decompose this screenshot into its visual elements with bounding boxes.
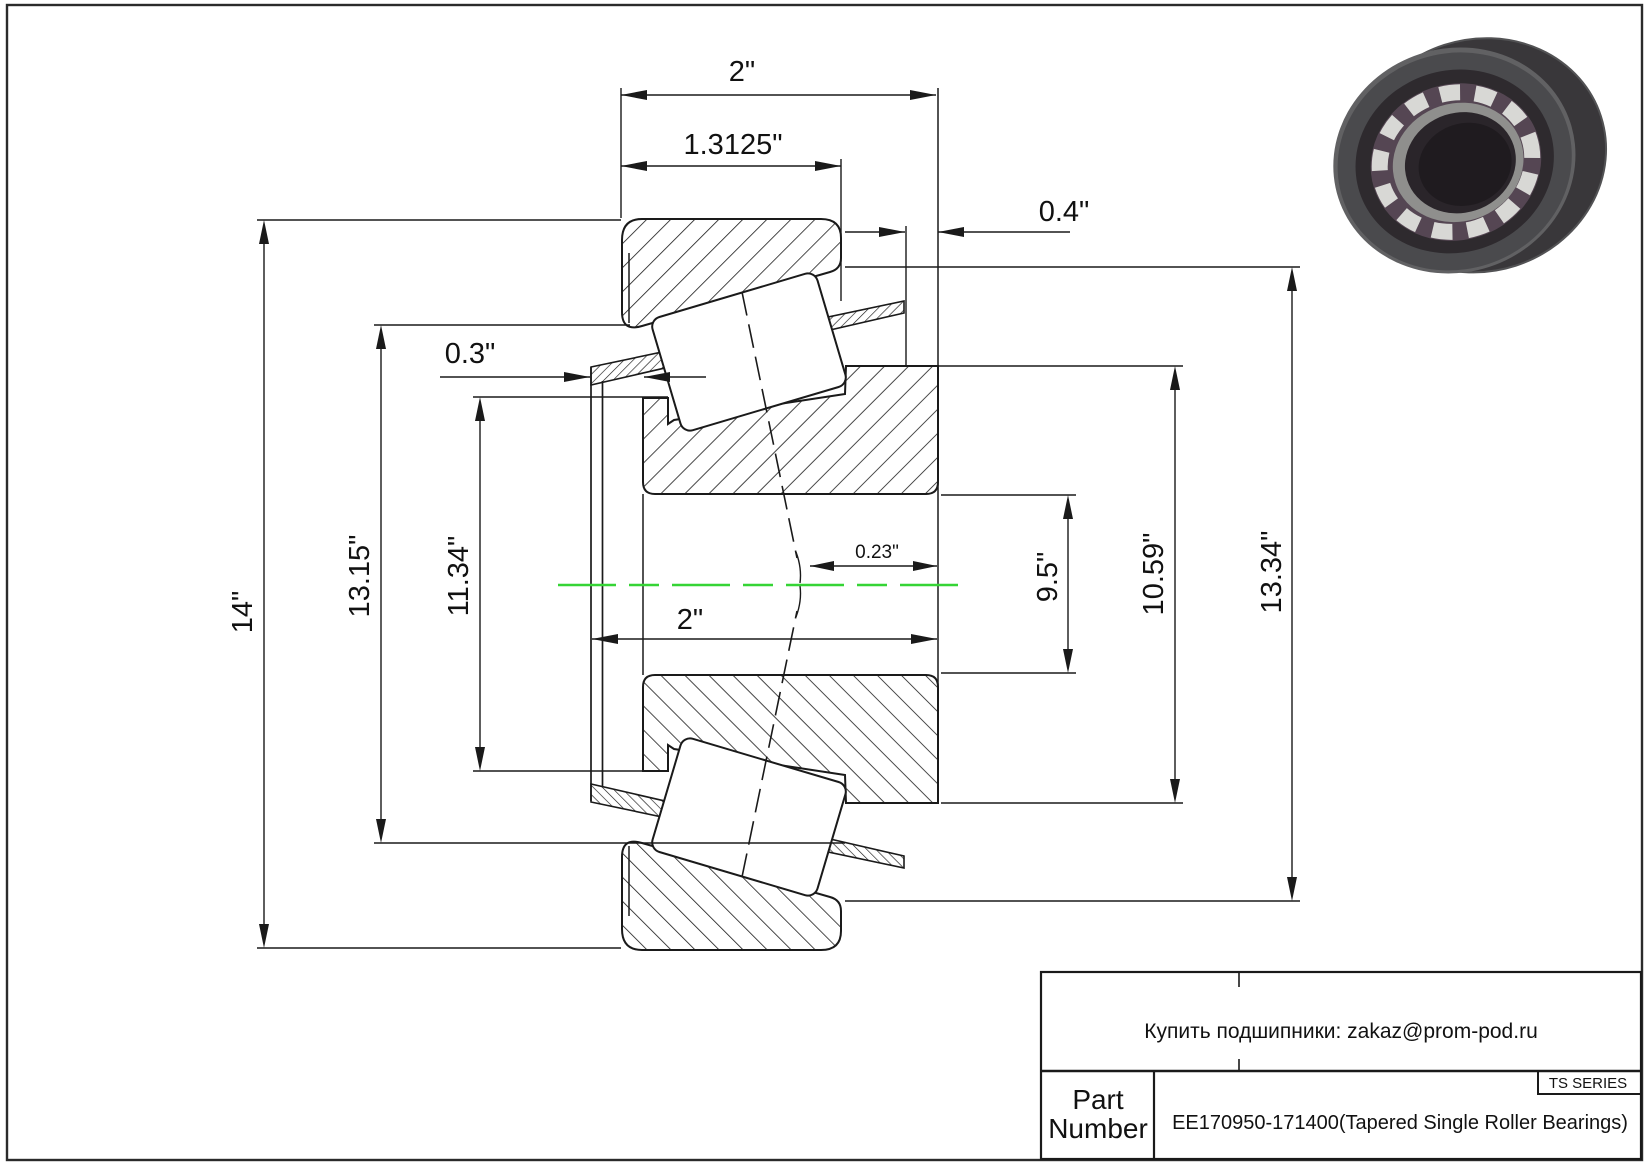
dim-cup-width: 1.3125" bbox=[684, 129, 783, 161]
dim-cone-back-rib-diameter: 10.59" bbox=[1138, 533, 1170, 616]
dim-bore-diameter: 9.5" bbox=[1032, 552, 1064, 603]
supplier-note: Купить подшипники: zakaz@prom-pod.ru bbox=[1144, 1020, 1538, 1043]
dim-cone-front-rib-diameter: 11.34" bbox=[443, 536, 475, 617]
part-number-value: EE170950-171400(Tapered Single Roller Be… bbox=[1172, 1112, 1628, 1134]
dim-front-cage-offset: 0.3" bbox=[445, 338, 496, 370]
series-label: TS SERIES bbox=[1549, 1075, 1627, 1092]
bearing-technical-drawing: 2" 1.3125" 0.4" 0.3" 14" 13.15" 11.34" 9… bbox=[0, 0, 1649, 1167]
dim-overall-width-top: 2" bbox=[729, 56, 755, 88]
dim-back-cage-offset: 0.4" bbox=[1039, 196, 1090, 228]
dim-apex-offset: 0.23" bbox=[855, 542, 899, 563]
dim-cone-back-face-diameter: 13.34" bbox=[1256, 531, 1288, 614]
part-label-line1: Part bbox=[1072, 1084, 1124, 1115]
dim-cup-inner-diameter: 13.15" bbox=[344, 535, 376, 618]
part-label-line2: Number bbox=[1048, 1113, 1148, 1144]
title-block: Купить подшипники: zakaz@prom-pod.ru TS … bbox=[1041, 972, 1641, 1159]
drawing-page: 2" 1.3125" 0.4" 0.3" 14" 13.15" 11.34" 9… bbox=[0, 0, 1649, 1167]
dim-outer-diameter: 14" bbox=[227, 591, 259, 634]
bearing-3d-render bbox=[1303, 6, 1636, 312]
dim-cone-width-bottom: 2" bbox=[677, 604, 703, 636]
